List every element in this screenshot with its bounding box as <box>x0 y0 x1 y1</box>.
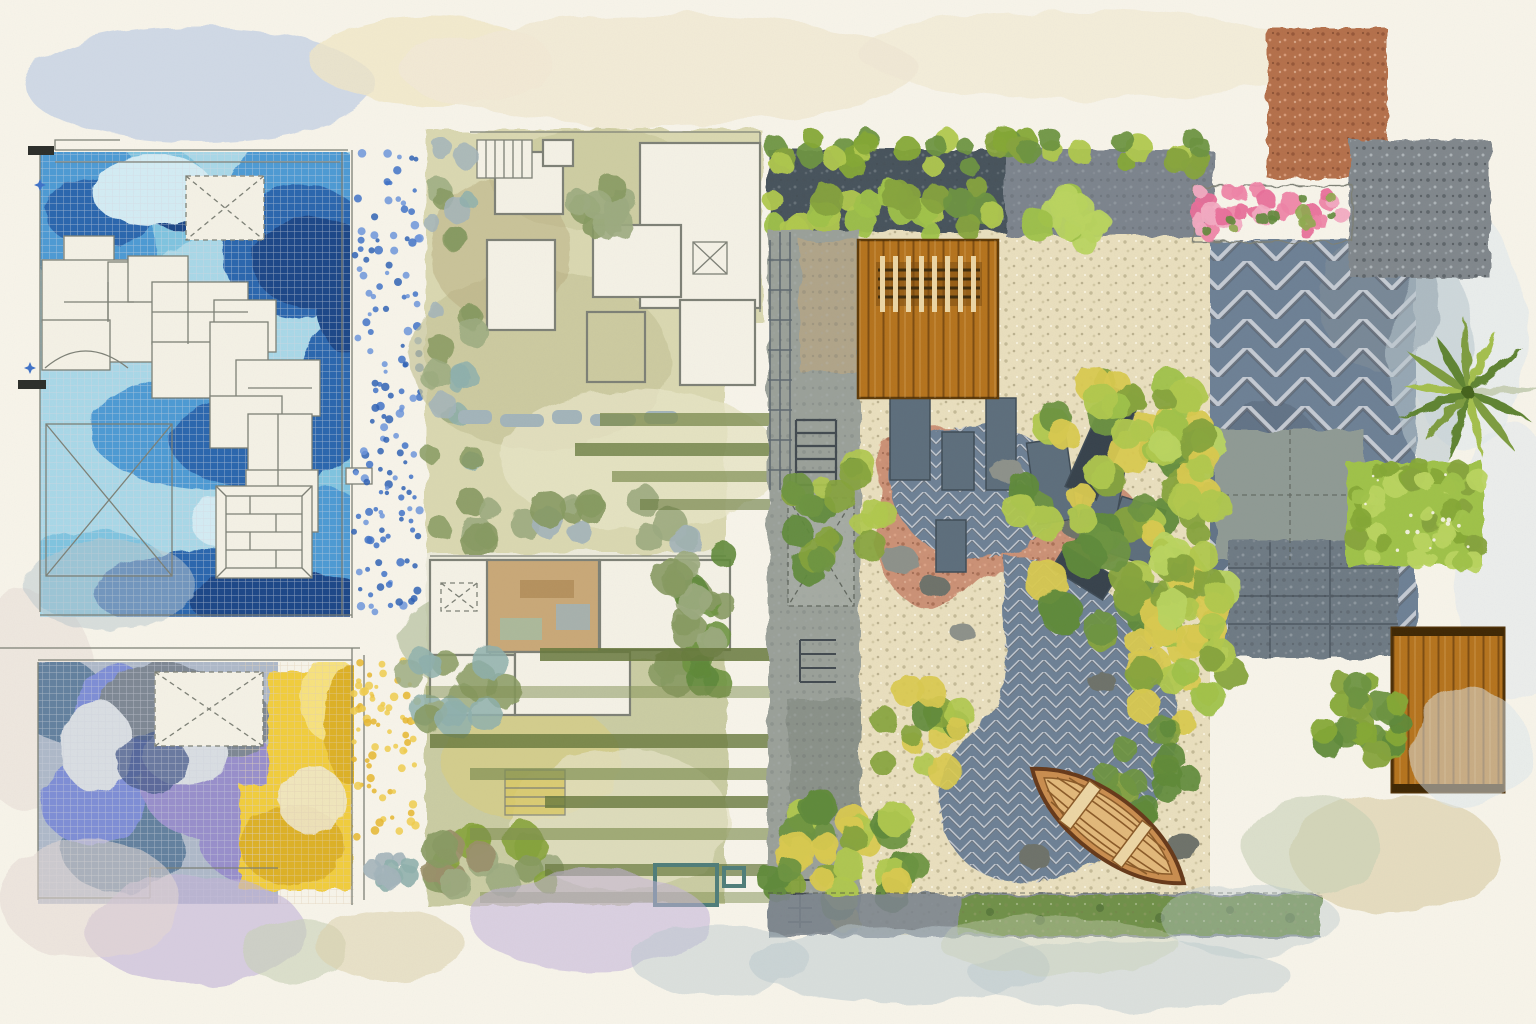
paper-texture-overlay <box>0 0 1536 1024</box>
watercolor-plan-artwork <box>0 0 1536 1024</box>
